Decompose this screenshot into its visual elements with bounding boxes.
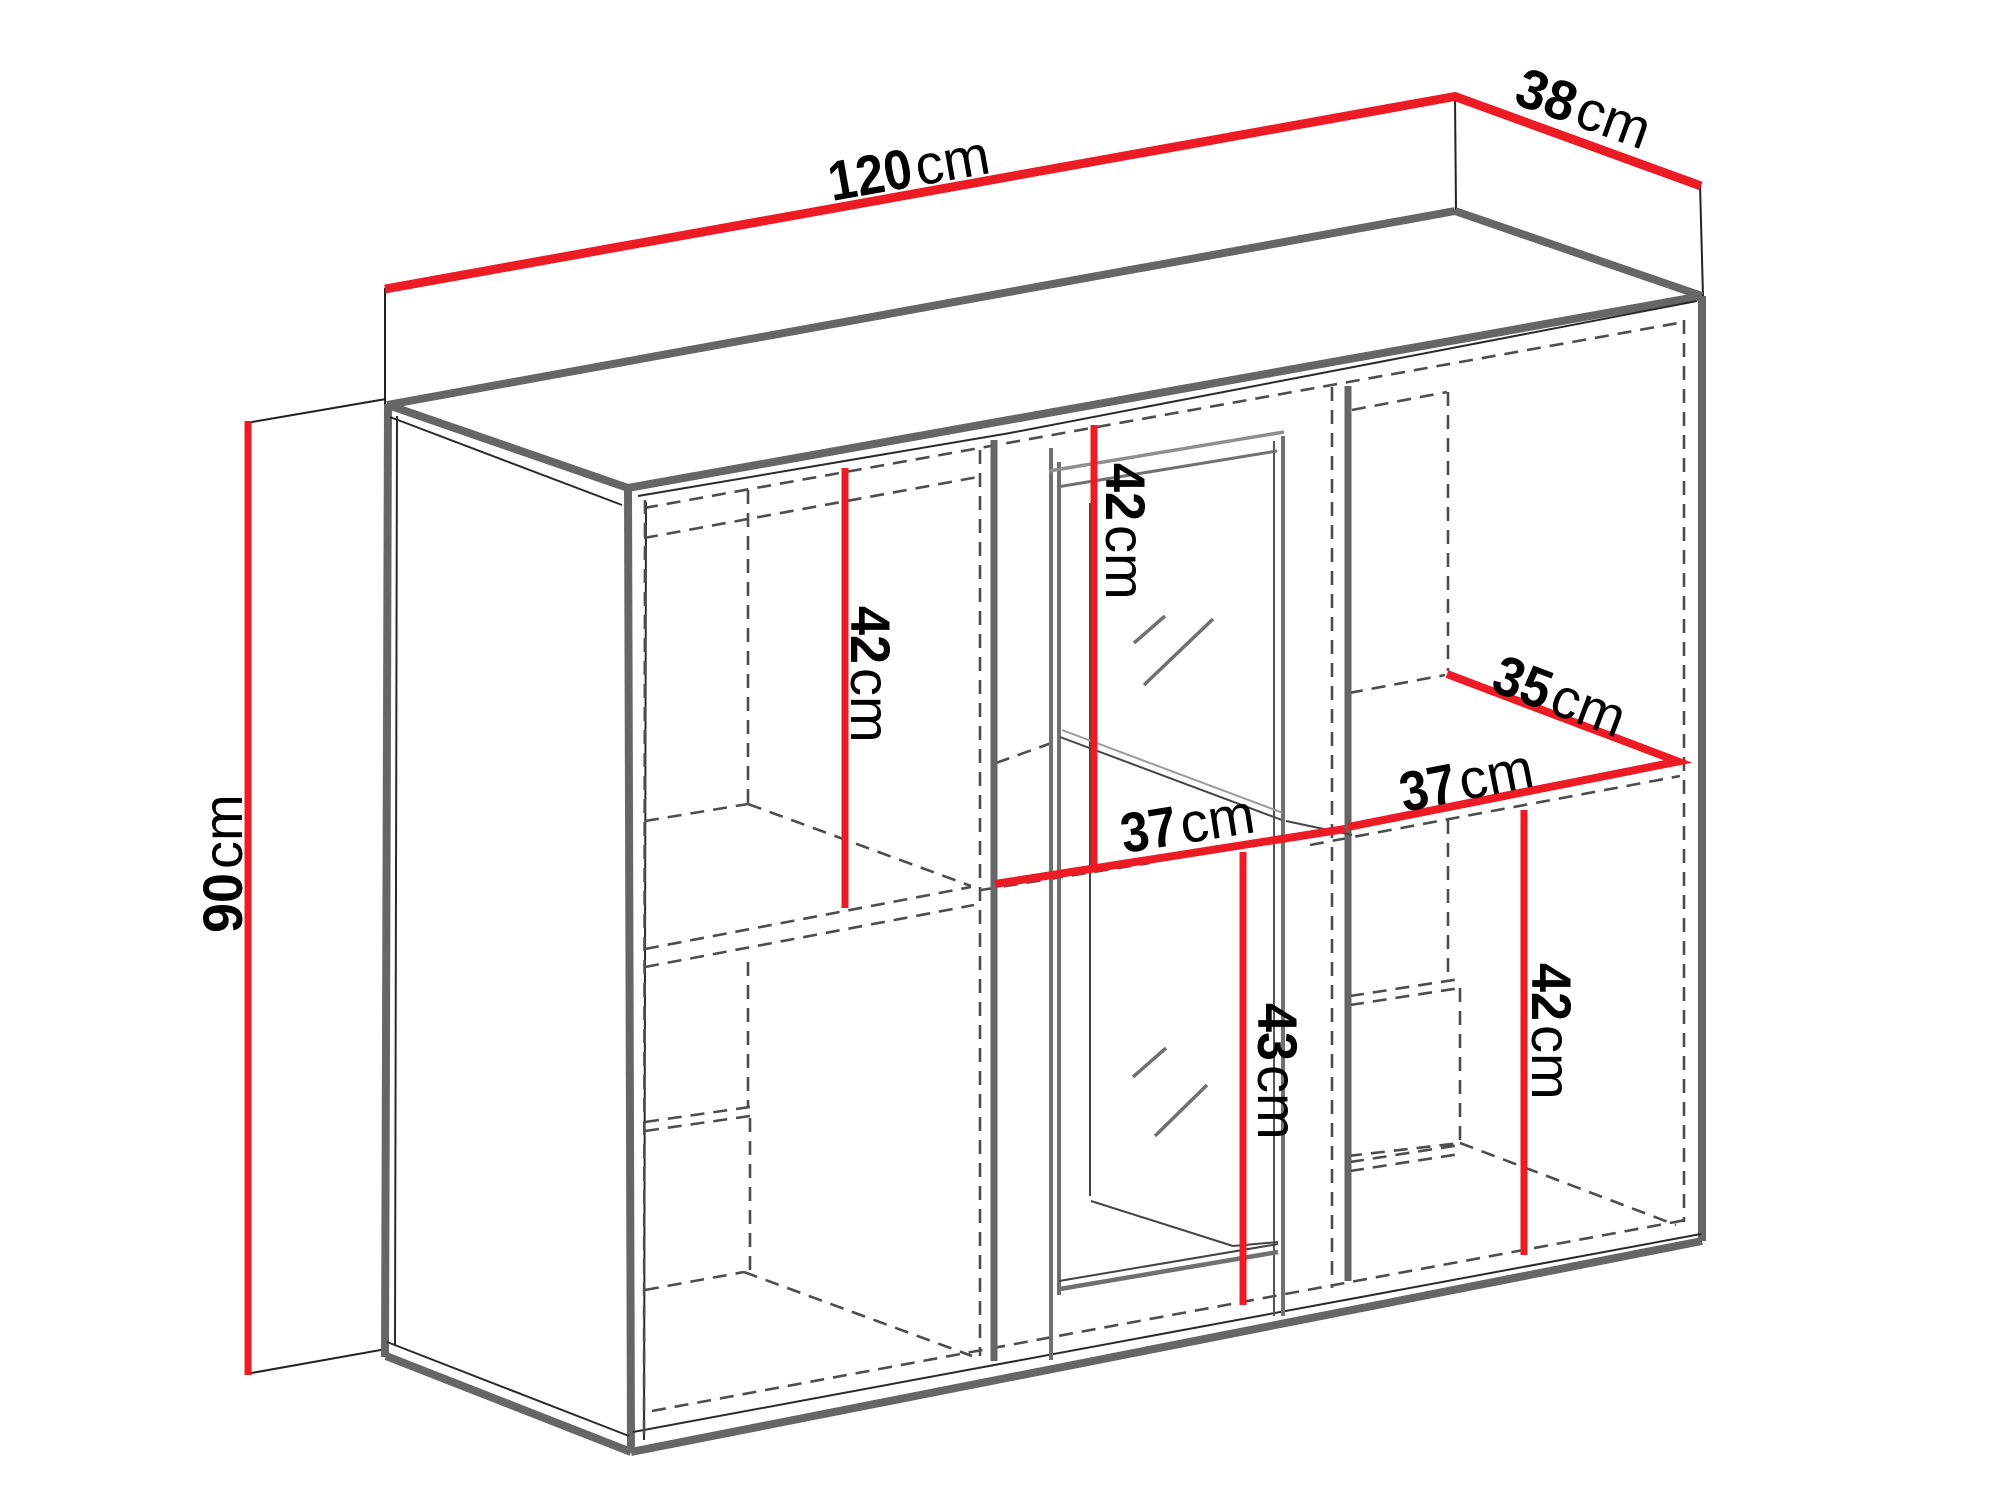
svg-text:90cm: 90cm bbox=[191, 794, 254, 933]
svg-text:43cm: 43cm bbox=[1246, 1003, 1309, 1140]
svg-text:42cm: 42cm bbox=[839, 606, 902, 743]
svg-text:42cm: 42cm bbox=[1520, 963, 1583, 1100]
svg-text:42cm: 42cm bbox=[1094, 463, 1157, 600]
